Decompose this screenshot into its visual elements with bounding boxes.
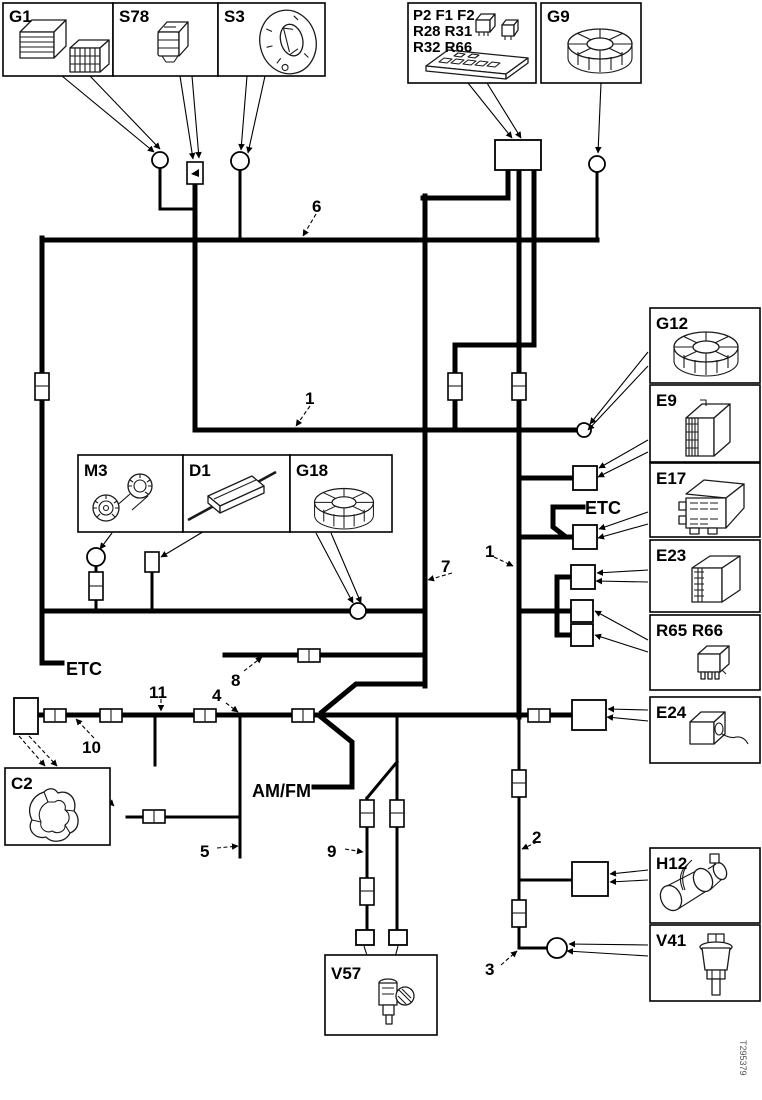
wire-number-7: 7 — [441, 557, 450, 576]
label-g9: G9 — [547, 7, 570, 26]
wire-number-10: 10 — [82, 738, 101, 757]
e23-art — [692, 556, 740, 602]
wire-number-8: 8 — [231, 671, 240, 690]
label-e24: E24 — [656, 703, 687, 722]
junction-box-top — [495, 140, 541, 170]
label-c2: C2 — [11, 774, 33, 793]
terminal-left-end — [14, 698, 38, 734]
wiring-diagram-canvas: G1 S78 S3 P2 F1 F2 R28 R31 R32 R66 G9 G1… — [0, 0, 762, 1100]
terminal-e23 — [571, 565, 595, 589]
etc-label-right: ETC — [585, 498, 621, 518]
terminal-s3 — [231, 152, 249, 170]
wire-number-leaders — [76, 214, 537, 965]
label-e17: E17 — [656, 469, 686, 488]
label-p2-line3: R32 R66 — [413, 39, 472, 56]
terminal-m3 — [87, 548, 105, 566]
terminal-v41 — [547, 938, 567, 958]
terminal-e9 — [573, 466, 597, 490]
label-m3: M3 — [84, 461, 108, 480]
label-g1: G1 — [9, 7, 32, 26]
label-v57: V57 — [331, 964, 361, 983]
wire-number-11: 11 — [149, 683, 167, 702]
terminal-r66 — [571, 624, 593, 646]
wire-number-1: 1 — [305, 389, 314, 408]
wire-number-6: 6 — [312, 197, 321, 216]
terminal-g12 — [577, 423, 591, 437]
am-fm-label: AM/FM — [252, 781, 311, 801]
label-e23: E23 — [656, 546, 686, 565]
label-s78: S78 — [119, 7, 149, 26]
label-v41: V41 — [656, 931, 686, 950]
wire-number-2: 2 — [532, 828, 541, 847]
harness-branch-wires — [96, 168, 597, 948]
terminal-g1 — [152, 152, 168, 168]
wire-number-9: 9 — [327, 842, 336, 861]
terminal-g18 — [350, 603, 366, 619]
terminal-h12 — [572, 862, 608, 896]
inline-connectors — [35, 162, 550, 927]
wiring-diagram-page: G1 S78 S3 P2 F1 F2 R28 R31 R32 R66 G9 G1… — [0, 0, 762, 1100]
net-labels: ETC ETC AM/FM — [66, 498, 621, 801]
label-g18: G18 — [296, 461, 328, 480]
label-p2-line1: P2 F1 F2 — [413, 7, 475, 24]
terminal-g9 — [589, 156, 605, 172]
label-e9: E9 — [656, 391, 677, 410]
wire-number-4: 4 — [212, 686, 222, 705]
figure-number: T295379 — [738, 1040, 748, 1076]
wire-number-3: 3 — [485, 960, 494, 979]
d1-inline-connector — [145, 552, 159, 572]
label-p2-line2: R28 R31 — [413, 23, 472, 40]
terminal-e17 — [573, 525, 597, 549]
terminal-v57-a — [356, 930, 374, 945]
s78-inline-connector — [187, 162, 203, 184]
wire-number-5: 5 — [200, 842, 209, 861]
wire-number-1b: 1 — [485, 542, 494, 561]
terminal-e24 — [572, 700, 606, 730]
c2-art — [30, 789, 78, 841]
terminal-v57-b — [389, 930, 407, 945]
label-r65-r66: R65 R66 — [656, 621, 723, 640]
label-g12: G12 — [656, 314, 688, 333]
label-s3: S3 — [224, 7, 245, 26]
terminal-r65 — [571, 600, 593, 622]
label-d1: D1 — [189, 461, 211, 480]
etc-label-left: ETC — [66, 659, 102, 679]
label-h12: H12 — [656, 854, 687, 873]
